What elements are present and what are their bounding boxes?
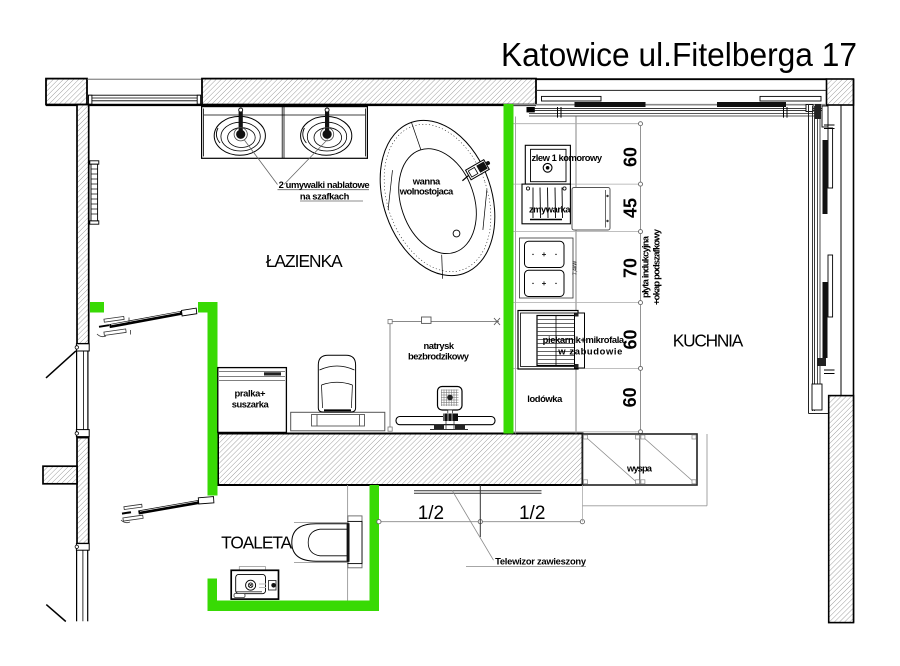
svg-text:1/2: 1/2 (519, 503, 545, 524)
svg-text:natrysk: natrysk (424, 340, 455, 351)
svg-text:60: 60 (620, 147, 640, 167)
svg-text:pralka+: pralka+ (235, 388, 267, 399)
svg-text:+okap podszafkowy: +okap podszafkowy (651, 228, 662, 305)
svg-text:45: 45 (620, 198, 640, 218)
svg-text:wolnostojaca: wolnostojaca (399, 186, 454, 197)
svg-text:Katowice ul.Fitelberga 17: Katowice ul.Fitelberga 17 (501, 37, 857, 74)
svg-text:Telewizor zawieszony: Telewizor zawieszony (495, 556, 587, 567)
svg-text:KUCHNIA: KUCHNIA (673, 330, 744, 350)
svg-text:bezbrodzikowy: bezbrodzikowy (408, 351, 470, 362)
svg-text:lodówka: lodówka (527, 393, 563, 404)
svg-text:wyspa: wyspa (626, 463, 653, 474)
svg-text:suszarka: suszarka (232, 398, 270, 409)
svg-text:płyta indukcyjna: płyta indukcyjna (640, 235, 651, 298)
svg-text:piekarnik+mikrofala: piekarnik+mikrofala (543, 334, 625, 345)
svg-text:7,4kW: 7,4kW (573, 261, 579, 275)
svg-text:w zabudowie: w zabudowie (557, 346, 622, 357)
svg-text:ŁAZIENKA: ŁAZIENKA (266, 251, 343, 271)
svg-text:TOALETA: TOALETA (221, 532, 292, 552)
svg-text:zlew 1 komorowy: zlew 1 komorowy (532, 152, 603, 163)
svg-text:70: 70 (620, 258, 640, 278)
svg-text:1/2: 1/2 (418, 503, 444, 524)
svg-text:2 umywalki nablatowe: 2 umywalki nablatowe (279, 179, 370, 190)
svg-text:na szafkach: na szafkach (300, 190, 350, 201)
svg-text:60: 60 (620, 387, 640, 407)
svg-text:zmywarka: zmywarka (529, 204, 571, 215)
